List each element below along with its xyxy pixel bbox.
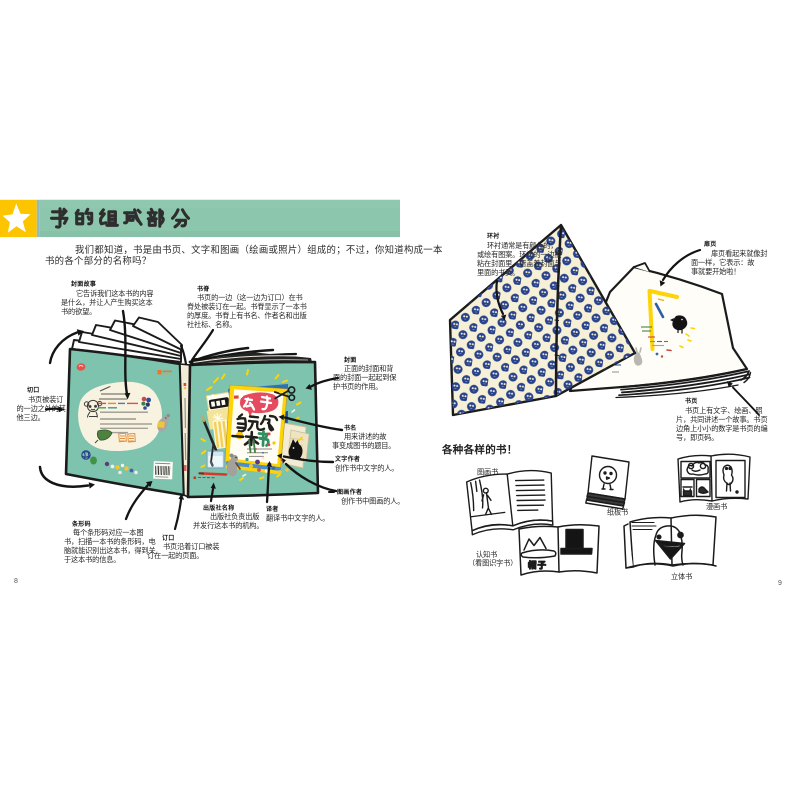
svg-text:于这本书的信息。: 于这本书的信息。	[64, 555, 120, 564]
svg-text:书页: 书页	[685, 397, 698, 405]
svg-text:用来讲述的故: 用来讲述的故	[344, 432, 386, 441]
svg-text:社社标、名称。: 社社标、名称。	[187, 320, 236, 329]
svg-text:出版社负责出版: 出版社负责出版	[210, 512, 259, 521]
svg-text:各种各样的书！: 各种各样的书！	[441, 443, 518, 456]
svg-text:护书页的作用。: 护书页的作用。	[333, 382, 382, 391]
svg-text:事就要开始啦！: 事就要开始啦！	[691, 267, 740, 276]
svg-text:帽子: 帽子	[528, 560, 547, 570]
svg-text:脊处被装订在一起。书脊显示了一本书: 脊处被装订在一起。书脊显示了一本书	[187, 302, 307, 311]
svg-text:订在一起的页面。: 订在一起的页面。	[147, 551, 203, 560]
svg-text:并发行这本书的机构。: 并发行这本书的机构。	[193, 521, 263, 530]
svg-text:创作书中图画的人。: 创作书中图画的人。	[341, 497, 404, 506]
svg-text:译者: 译者	[266, 505, 279, 513]
svg-text:片，共同讲述一个故事。书页: 片，共同讲述一个故事。书页	[676, 415, 768, 424]
svg-text:订口: 订口	[162, 534, 175, 542]
svg-text:书页沿着订口被装: 书页沿着订口被装	[163, 542, 219, 551]
svg-text:纸板书: 纸板书	[607, 508, 628, 517]
svg-text:切口: 切口	[27, 387, 40, 394]
svg-text:面一样，它表示：故: 面一样，它表示：故	[691, 258, 754, 267]
svg-text:书，扫描一本书的条形码，电: 书，扫描一本书的条形码，电	[64, 537, 156, 546]
svg-text:文字作者: 文字作者	[334, 455, 360, 463]
svg-text:书页的一边（这一边为订口）在书: 书页的一边（这一边为订口）在书	[197, 293, 303, 302]
svg-text:每个条形码对应一本图: 每个条形码对应一本图	[73, 528, 143, 537]
svg-text:8: 8	[14, 578, 18, 585]
svg-text:扉页: 扉页	[703, 240, 717, 248]
svg-text:或绘有图案。环衬的一边被: 或绘有图案。环衬的一边被	[477, 250, 561, 259]
svg-text:出版社名称: 出版社名称	[203, 504, 235, 512]
svg-text:里面的书页。: 里面的书页。	[477, 268, 519, 277]
svg-text:条形码: 条形码	[71, 520, 91, 528]
svg-text:书脊: 书脊	[197, 285, 210, 293]
svg-text:粘在封面里，遮盖着封面与: 粘在封面里，遮盖着封面与	[477, 259, 561, 268]
svg-text:边角上小小的数字是书页的编: 边角上小小的数字是书页的编	[676, 424, 768, 433]
svg-text:脑就能识别出这本书，得到关: 脑就能识别出这本书，得到关	[64, 546, 156, 555]
svg-text:环衬: 环衬	[487, 232, 500, 240]
svg-text:的厚度。书脊上有书名、作者名和出版: 的厚度。书脊上有书名、作者名和出版	[187, 311, 307, 320]
svg-text:扉页看起来就像封: 扉页看起来就像封	[711, 249, 767, 258]
svg-text:封面故事: 封面故事	[71, 280, 96, 288]
svg-text:面的封面一起起到保: 面的封面一起起到保	[333, 373, 397, 382]
svg-text:创作书中文字的人。: 创作书中文字的人。	[335, 464, 398, 473]
svg-text:它告诉我们这本书的内容: 它告诉我们这本书的内容	[76, 289, 153, 298]
svg-text:是什么，并让人产生购买这本: 是什么，并让人产生购买这本	[61, 298, 153, 307]
svg-text:正面的封面和背: 正面的封面和背	[344, 364, 393, 373]
svg-text:漫画书: 漫画书	[706, 502, 727, 511]
svg-text:（看图识字书）: （看图识字书）	[468, 559, 517, 568]
svg-text:书的各个部分的名称吗？: 书的各个部分的名称吗？	[45, 255, 151, 266]
svg-text:封面: 封面	[344, 356, 357, 364]
svg-text:事变成图书的题目。: 事变成图书的题目。	[332, 441, 395, 450]
svg-text:号，即页码。: 号，即页码。	[676, 433, 718, 442]
svg-text:书的欲望。: 书的欲望。	[61, 307, 96, 316]
svg-text:图画作者: 图画作者	[337, 488, 362, 496]
svg-text:9: 9	[778, 580, 782, 587]
svg-text:他三边。: 他三边。	[17, 413, 45, 422]
svg-text:书名: 书名	[344, 424, 357, 432]
svg-text:书页被装订: 书页被装订	[28, 395, 63, 404]
svg-text:立体书: 立体书	[671, 572, 692, 581]
svg-text:环衬通常是有颜色的，: 环衬通常是有颜色的，	[487, 241, 557, 250]
svg-text:翻译书中文字的人。: 翻译书中文字的人。	[266, 514, 329, 523]
svg-text:我们都知道，书是由书页、文字和图画（绘画或照片）组成的；不过: 我们都知道，书是由书页、文字和图画（绘画或照片）组成的；不过，你知道构成一本	[75, 244, 443, 255]
